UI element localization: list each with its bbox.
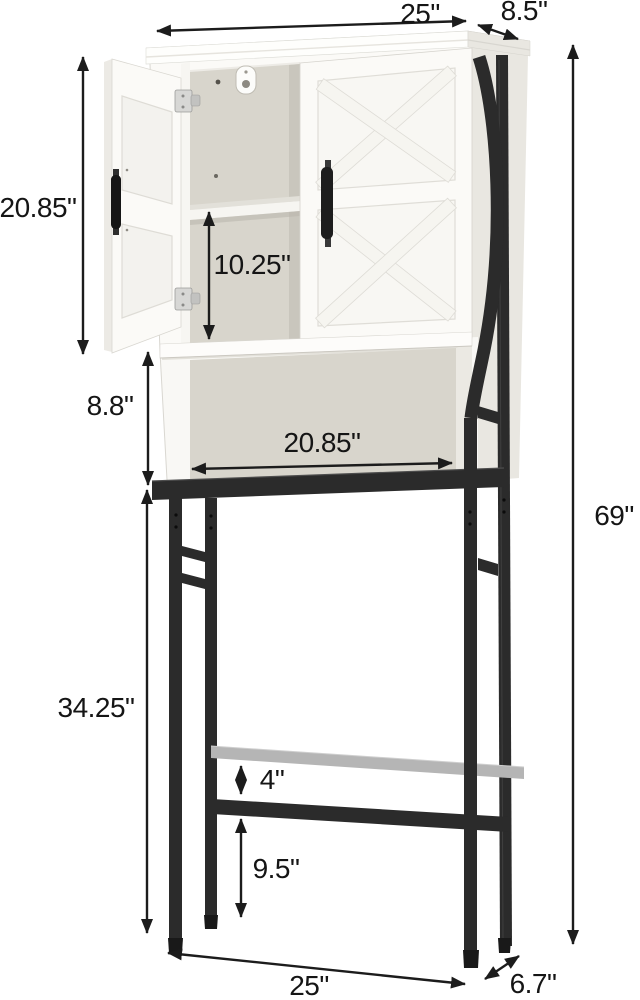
door-edge bbox=[104, 59, 112, 352]
barn-door bbox=[300, 48, 472, 347]
rear-right-foot bbox=[498, 938, 511, 953]
dim-label-base-width: 25" bbox=[289, 972, 329, 1000]
rear-left-leg bbox=[205, 498, 217, 917]
right-side-brace bbox=[478, 558, 498, 576]
front-left-leg bbox=[169, 498, 182, 940]
front-right-foot bbox=[463, 950, 479, 968]
dim-label-interior-shelf-height: 10.25" bbox=[213, 251, 290, 279]
frame-bolts bbox=[174, 498, 505, 529]
dim-label-open-shelf-height: 8.8" bbox=[87, 392, 134, 420]
screw-hole bbox=[214, 174, 218, 178]
dim-label-cabinet-height: 20.85" bbox=[0, 194, 77, 222]
dim-label-crossbar-gap: 4" bbox=[260, 766, 285, 794]
dim-label-total-height: 69" bbox=[594, 502, 634, 530]
dim-label-open-shelf-width: 20.85" bbox=[283, 429, 360, 457]
product-dimension-diagram: 25" 8.5" 20.85" 10.25" 8.8" 20.85" 69" 3… bbox=[0, 0, 640, 1000]
front-left-foot bbox=[168, 938, 183, 953]
barn-door-handle bbox=[321, 160, 333, 247]
left-side-brace bbox=[182, 573, 205, 589]
rear-left-foot bbox=[204, 915, 218, 929]
furniture-drawing bbox=[0, 0, 640, 1000]
screw-hole bbox=[216, 80, 221, 85]
left-side-brace bbox=[182, 546, 205, 562]
wall-mount-hook bbox=[236, 66, 256, 94]
door-upper-panel bbox=[122, 96, 172, 204]
dim-label-top-depth: 8.5" bbox=[501, 0, 548, 25]
dim-label-lower-crossbar-height: 9.5" bbox=[253, 855, 300, 883]
dim-label-top-width: 25" bbox=[400, 0, 440, 28]
front-right-leg bbox=[464, 418, 477, 952]
left-door-handle bbox=[111, 169, 121, 235]
dim-label-base-depth: 6.7" bbox=[510, 970, 557, 998]
cabinet-interior bbox=[190, 62, 300, 354]
upper-crossbar-silver bbox=[211, 746, 524, 779]
dim-label-frame-leg-height: 34.25" bbox=[57, 694, 134, 722]
